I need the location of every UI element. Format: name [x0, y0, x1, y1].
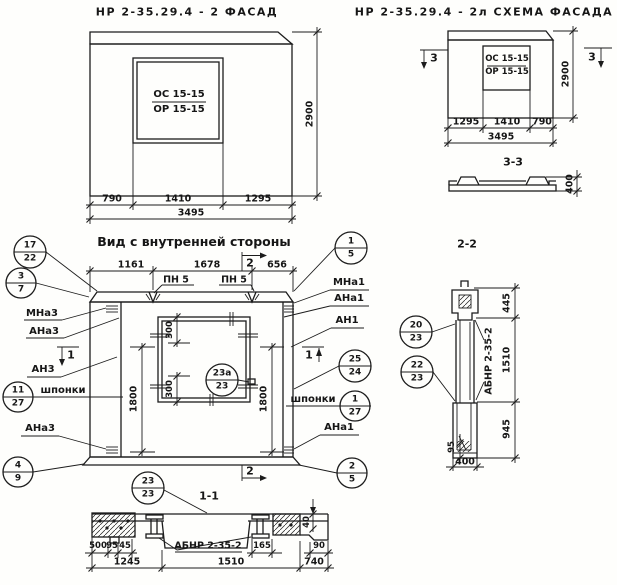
facade-dim-right: 1295	[245, 194, 271, 204]
s11-dim-40: 40	[303, 516, 312, 528]
schema-dim-height: 2900	[561, 61, 571, 87]
facade-dim-height: 2900	[305, 101, 315, 127]
callout-23-23-bot: 23	[142, 491, 155, 500]
schema-window-mark-bot: ОР 15-15	[485, 68, 529, 77]
callout-3-7-top: 3	[18, 273, 24, 282]
callout-1-5-top: 1	[348, 238, 354, 247]
iv-label-shponki-left: шпонки	[40, 386, 85, 396]
callout-4-9-bot: 9	[15, 475, 21, 484]
s11-dim-95: 95	[106, 542, 118, 551]
iv-dim-1: 1161	[118, 260, 144, 270]
s11-dim-500: 500	[89, 542, 107, 551]
iv-cut-1-right: 1	[305, 350, 313, 361]
iv-dim-1800-right: 1800	[259, 386, 269, 412]
callout-22-23-bot: 23	[411, 375, 424, 384]
callout-20-23-bot: 23	[410, 335, 423, 344]
iv-cut-1-left: 1	[67, 350, 75, 361]
iv-label-mna3: МНа3	[26, 309, 58, 319]
schema-cut-mark-right: 3	[588, 52, 596, 63]
facade-window-mark-top: ОС 15-15	[153, 90, 204, 100]
iv-dim-3: 656	[267, 260, 287, 270]
facade-dim-mid: 1410	[165, 194, 191, 204]
s22-dim-945: 945	[502, 419, 512, 439]
callout-1-27-bot: 27	[349, 409, 362, 418]
callout-23a-23-top: 23а	[213, 370, 232, 379]
s11-dim-1245: 1245	[114, 557, 140, 567]
callout-25-24-top: 25	[349, 356, 362, 365]
callout-2-5-bot: 5	[349, 476, 355, 485]
drawing-sheet: НР 2-35.29.4 - 2 ФАСАД ОС 15-15 ОР 15-15…	[0, 0, 617, 585]
callout-11-27-top: 11	[12, 387, 25, 396]
schema-dim-mid: 1410	[494, 117, 520, 127]
iv-dim-300-bot: 300	[166, 380, 175, 398]
s11-dim-740: 740	[304, 557, 324, 567]
s11-dim-165: 165	[253, 542, 271, 551]
s11-dim-45: 45	[119, 542, 131, 551]
facade-dim-left: 790	[102, 194, 122, 204]
iv-dim-300-top: 300	[166, 321, 175, 339]
schema-window-mark-top: ОС 15-15	[485, 55, 529, 64]
s11-dim-90: 90	[313, 542, 325, 551]
section-2-2-panel-label: АБНР 2-35-2	[484, 327, 494, 394]
iv-label-an3: АН3	[31, 365, 54, 375]
facade-window-mark-bot: ОР 15-15	[153, 105, 204, 115]
callout-23a-23-bot: 23	[216, 383, 229, 392]
callout-1-27-top: 1	[352, 396, 358, 405]
iv-pn5-right: ПН 5	[221, 275, 247, 285]
s22-dim-400: 400	[455, 457, 475, 467]
iv-label-mna1: МНа1	[333, 278, 365, 288]
iv-cut-2-top: 2	[246, 258, 254, 269]
callout-11-27-bot: 27	[12, 400, 25, 409]
facade-dim-total: 3495	[178, 208, 204, 218]
callout-23-23-top: 23	[142, 478, 155, 487]
callout-17-22-bot: 22	[24, 255, 37, 264]
section-2-2-title: 2-2	[457, 239, 477, 250]
iv-dim-2: 1678	[194, 260, 220, 270]
iv-pn5-left: ПН 5	[163, 275, 189, 285]
s11-dim-1510: 1510	[218, 557, 244, 567]
callout-22-23-top: 22	[411, 362, 424, 371]
callout-1-5-bot: 5	[348, 251, 354, 260]
section-3-3-title: 3-3	[503, 157, 523, 168]
callout-25-24-bot: 24	[349, 369, 362, 378]
iv-dim-1800-left: 1800	[129, 386, 139, 412]
iv-label-ana1-b: АНа1	[324, 423, 354, 433]
drawing-linework	[0, 0, 617, 585]
schema-title: НР 2-35.29.4 - 2л СХЕМА ФАСАДА	[355, 7, 613, 18]
s22-dim-95: 95	[448, 441, 457, 453]
iv-label-an1: АН1	[335, 316, 358, 326]
iv-label-ana1: АНа1	[334, 294, 364, 304]
schema-dim-left: 1295	[453, 117, 479, 127]
section-1-1-panel-label: АБНР 2-35-2	[174, 541, 241, 551]
iv-cut-2-bot: 2	[246, 466, 254, 477]
iv-label-ana3-b: АНа3	[25, 424, 55, 434]
callout-17-22-top: 17	[24, 242, 37, 251]
section-1-1-title: 1-1	[199, 491, 219, 502]
callout-2-5-top: 2	[349, 463, 355, 472]
iv-label-shponki-right: шпонки	[290, 395, 335, 405]
iv-label-ana3: АНа3	[29, 327, 59, 337]
section-3-3-dim: 400	[565, 174, 575, 194]
schema-cut-mark-left: 3	[430, 53, 438, 64]
facade-title: НР 2-35.29.4 - 2 ФАСАД	[96, 7, 278, 18]
schema-dim-right: 790	[532, 117, 552, 127]
callout-4-9-top: 4	[15, 462, 21, 471]
s22-dim-445: 445	[502, 293, 512, 313]
callout-20-23-top: 20	[410, 322, 423, 331]
inner-view-title: Вид с внутренней стороны	[97, 236, 290, 249]
s22-dim-1510: 1510	[502, 347, 512, 373]
callout-3-7-bot: 7	[18, 286, 24, 295]
schema-dim-total: 3495	[488, 132, 514, 142]
